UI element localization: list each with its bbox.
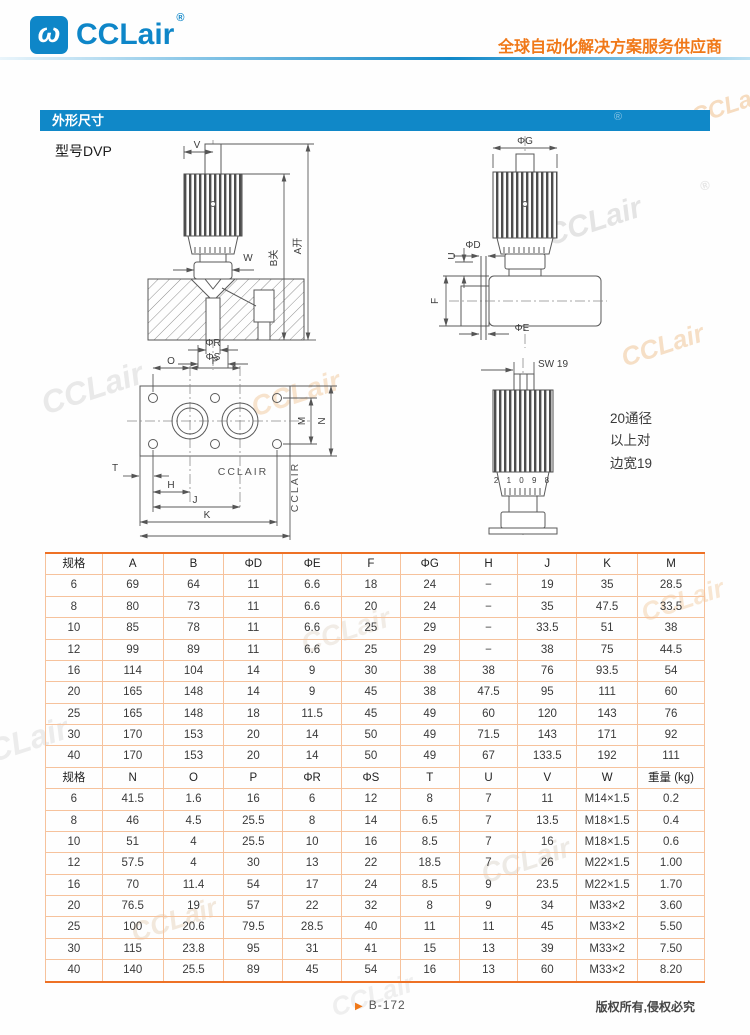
spec-cell: 25 xyxy=(46,917,103,938)
value-cell: 34 xyxy=(518,896,577,917)
value-cell: 70 xyxy=(102,874,163,895)
dim-label-phi-d: ΦD xyxy=(465,240,480,251)
value-cell: 11 xyxy=(518,789,577,810)
value-cell: 13.5 xyxy=(518,810,577,831)
knob-scale-digits: 2 1 0 9 8 xyxy=(494,476,552,485)
table-row: 88073116.62024−3547.533.5 xyxy=(46,596,705,617)
value-cell: 51 xyxy=(577,618,638,639)
value-cell: 148 xyxy=(163,703,224,724)
value-cell: 20 xyxy=(224,725,283,746)
value-cell: 45 xyxy=(518,917,577,938)
value-cell: M22×1.5 xyxy=(577,853,638,874)
value-cell: 13 xyxy=(283,853,342,874)
value-cell: 18 xyxy=(224,703,283,724)
value-cell: 9 xyxy=(459,896,518,917)
value-cell: 17 xyxy=(283,874,342,895)
value-cell: 171 xyxy=(577,725,638,746)
dimension-table: 规格ABΦDΦEFΦGHJKM66964116.61824−193528.588… xyxy=(45,552,705,983)
value-cell: 6.6 xyxy=(283,618,342,639)
column-header: J xyxy=(518,553,577,575)
column-header: F xyxy=(342,553,401,575)
table-row: 2076.5195722328934M33×23.60 xyxy=(46,896,705,917)
value-cell: 11 xyxy=(224,618,283,639)
value-cell: 45 xyxy=(342,703,401,724)
column-header: ΦE xyxy=(283,553,342,575)
value-cell: M18×1.5 xyxy=(577,831,638,852)
value-cell: 6.5 xyxy=(400,810,459,831)
value-cell: 165 xyxy=(102,703,163,724)
value-cell: 16 xyxy=(400,960,459,982)
value-cell: 6.6 xyxy=(283,596,342,617)
value-cell: 76 xyxy=(518,660,577,681)
value-cell: 49 xyxy=(400,725,459,746)
value-cell: 14 xyxy=(342,810,401,831)
section-banner: 外形尺寸 ® xyxy=(40,110,710,131)
value-cell: 23.5 xyxy=(518,874,577,895)
spec-cell: 16 xyxy=(46,874,103,895)
value-cell: 60 xyxy=(518,960,577,982)
column-header: ΦD xyxy=(224,553,283,575)
value-cell: 114 xyxy=(102,660,163,681)
value-cell: 49 xyxy=(400,746,459,767)
value-cell: 35 xyxy=(518,596,577,617)
dim-label-sw: SW 19 xyxy=(538,359,568,370)
table-row: 3011523.8953141151339M33×27.50 xyxy=(46,938,705,959)
table-row: 108578116.62529−33.55138 xyxy=(46,618,705,639)
plate-dimensions: O P M N T H J K CCLAIR CCLA xyxy=(112,356,337,540)
table-row: 4014025.5894554161360M33×28.20 xyxy=(46,960,705,982)
value-cell: 95 xyxy=(224,938,283,959)
page-number-text: B-172 xyxy=(369,998,406,1012)
value-cell: 64 xyxy=(163,575,224,596)
value-cell: 4 xyxy=(163,831,224,852)
value-cell: 3.60 xyxy=(638,896,705,917)
value-cell: 20 xyxy=(342,596,401,617)
value-cell: 30 xyxy=(342,660,401,681)
page-number: ▶B-172 xyxy=(355,998,406,1012)
dim-label-j: J xyxy=(193,495,198,506)
dimension-table-wrap: 规格ABΦDΦEFΦGHJKM66964116.61824−193528.588… xyxy=(45,552,705,983)
value-cell: 6.6 xyxy=(283,639,342,660)
spec-cell: 20 xyxy=(46,682,103,703)
value-cell: − xyxy=(459,575,518,596)
value-cell: 111 xyxy=(577,682,638,703)
table-row: 2510020.679.528.540111145M33×25.50 xyxy=(46,917,705,938)
value-cell: 115 xyxy=(102,938,163,959)
value-cell: 4 xyxy=(163,853,224,874)
value-cell: 143 xyxy=(577,703,638,724)
value-cell: 29 xyxy=(400,618,459,639)
model-label: 型号DVP xyxy=(55,141,112,161)
value-cell: 60 xyxy=(638,682,705,703)
company-tagline: 全球自动化解决方案服务供应商 xyxy=(498,33,722,57)
value-cell: 165 xyxy=(102,682,163,703)
column-header: O xyxy=(163,767,224,788)
value-cell: 24 xyxy=(400,575,459,596)
value-cell: 46 xyxy=(102,810,163,831)
table-row: 1257.5430132218.5726M22×1.51.00 xyxy=(46,853,705,874)
dim-label-t: T xyxy=(112,463,118,474)
dim-label-b-closed: B关 xyxy=(267,250,280,267)
value-cell: 4.5 xyxy=(163,810,224,831)
section-title: 外形尺寸 xyxy=(40,110,710,131)
column-header: A xyxy=(102,553,163,575)
column-header: N xyxy=(102,767,163,788)
knob-note-line: 以上对 xyxy=(610,430,700,452)
column-header: W xyxy=(577,767,638,788)
value-cell: 54 xyxy=(638,660,705,681)
value-cell: 14 xyxy=(283,746,342,767)
value-cell: 89 xyxy=(163,639,224,660)
dim-label-v: V xyxy=(194,140,201,151)
value-cell: 20.6 xyxy=(163,917,224,938)
table-row: 401701532014504967133.5192111 xyxy=(46,746,705,767)
column-header: 重量 (kg) xyxy=(638,767,705,788)
value-cell: 9 xyxy=(283,660,342,681)
value-cell: 11 xyxy=(224,639,283,660)
value-cell: 23.8 xyxy=(163,938,224,959)
value-cell: 38 xyxy=(518,639,577,660)
spec-cell: 8 xyxy=(46,596,103,617)
value-cell: 25.5 xyxy=(163,960,224,982)
brand-logo-icon: ω xyxy=(30,16,68,54)
value-cell: 69 xyxy=(102,575,163,596)
dim-label-f: F xyxy=(430,298,441,304)
value-cell: 38 xyxy=(638,618,705,639)
value-cell: 39 xyxy=(518,938,577,959)
value-cell: 148 xyxy=(163,682,224,703)
value-cell: 18 xyxy=(342,575,401,596)
spec-cell: 20 xyxy=(46,896,103,917)
value-cell: 40 xyxy=(342,917,401,938)
value-cell: 1.6 xyxy=(163,789,224,810)
value-cell: 22 xyxy=(283,896,342,917)
dim-label-o: O xyxy=(167,356,175,367)
value-cell: M33×2 xyxy=(577,938,638,959)
dim-label-n: N xyxy=(317,417,328,424)
table-row: 66964116.61824−193528.5 xyxy=(46,575,705,596)
value-cell: 47.5 xyxy=(577,596,638,617)
value-cell: 57.5 xyxy=(102,853,163,874)
column-header: T xyxy=(400,767,459,788)
value-cell: M33×2 xyxy=(577,960,638,982)
value-cell: 14 xyxy=(224,660,283,681)
value-cell: 170 xyxy=(102,725,163,746)
value-cell: 100 xyxy=(102,917,163,938)
value-cell: M22×1.5 xyxy=(577,874,638,895)
drawing-side-view: ΦG ΦD U F ΦE xyxy=(425,134,640,354)
brand-name: CCLair® xyxy=(76,18,182,52)
spec-cell: 10 xyxy=(46,618,103,639)
value-cell: − xyxy=(459,596,518,617)
value-cell: 54 xyxy=(224,874,283,895)
value-cell: 0.2 xyxy=(638,789,705,810)
table-row: 161141041493038387693.554 xyxy=(46,660,705,681)
value-cell: 33.5 xyxy=(638,596,705,617)
value-cell: 1.00 xyxy=(638,853,705,874)
value-cell: 33.5 xyxy=(518,618,577,639)
knob-note-line: 20通径 xyxy=(610,408,700,430)
value-cell: 9 xyxy=(283,682,342,703)
value-cell: 7 xyxy=(459,831,518,852)
value-cell: 11.5 xyxy=(283,703,342,724)
value-cell: 20 xyxy=(224,746,283,767)
value-cell: 120 xyxy=(518,703,577,724)
value-cell: 143 xyxy=(518,725,577,746)
value-cell: 140 xyxy=(102,960,163,982)
value-cell: 31 xyxy=(283,938,342,959)
value-cell: 85 xyxy=(102,618,163,639)
value-cell: 11 xyxy=(224,596,283,617)
value-cell: 78 xyxy=(163,618,224,639)
value-cell: 22 xyxy=(342,853,401,874)
dim-label-phi-e: ΦE xyxy=(515,323,530,334)
value-cell: 16 xyxy=(518,831,577,852)
value-cell: 18.5 xyxy=(400,853,459,874)
column-header: P xyxy=(224,767,283,788)
value-cell: 6.6 xyxy=(283,575,342,596)
column-header: 规格 xyxy=(46,553,103,575)
value-cell: 45 xyxy=(342,682,401,703)
value-cell: 38 xyxy=(400,682,459,703)
value-cell: 19 xyxy=(518,575,577,596)
value-cell: 192 xyxy=(577,746,638,767)
value-cell: M33×2 xyxy=(577,917,638,938)
value-cell: 10 xyxy=(283,831,342,852)
value-cell: 16 xyxy=(342,831,401,852)
brand-text: CCLair xyxy=(76,18,174,51)
drawing-plate-view: O P M N T H J K CCLAIR CCLA xyxy=(95,352,375,552)
spec-cell: 6 xyxy=(46,575,103,596)
value-cell: M18×1.5 xyxy=(577,810,638,831)
spec-cell: 40 xyxy=(46,960,103,982)
value-cell: M14×1.5 xyxy=(577,789,638,810)
value-cell: 49 xyxy=(400,703,459,724)
value-cell: 51 xyxy=(102,831,163,852)
value-cell: 16 xyxy=(224,789,283,810)
value-cell: 71.5 xyxy=(459,725,518,746)
value-cell: 8 xyxy=(283,810,342,831)
value-cell: 32 xyxy=(342,896,401,917)
value-cell: − xyxy=(459,618,518,639)
spec-cell: 12 xyxy=(46,639,103,660)
value-cell: 111 xyxy=(638,746,705,767)
value-cell: 13 xyxy=(459,938,518,959)
value-cell: 38 xyxy=(459,660,518,681)
table-row: 251651481811.545496012014376 xyxy=(46,703,705,724)
table-row: 8464.525.58146.5713.5M18×1.50.4 xyxy=(46,810,705,831)
value-cell: 8 xyxy=(400,896,459,917)
value-cell: 45 xyxy=(283,960,342,982)
spec-cell: 8 xyxy=(46,810,103,831)
drawing-front-view: V W B关 A开 ΦR ΦS xyxy=(118,138,358,373)
value-cell: 50 xyxy=(342,725,401,746)
header-divider xyxy=(0,57,750,60)
value-cell: 153 xyxy=(163,725,224,746)
value-cell: 50 xyxy=(342,746,401,767)
value-cell: 8 xyxy=(400,789,459,810)
plate-geometry xyxy=(127,366,310,510)
value-cell: 19 xyxy=(163,896,224,917)
value-cell: 57 xyxy=(224,896,283,917)
column-header: ΦS xyxy=(342,767,401,788)
column-header: V xyxy=(518,767,577,788)
spec-cell: 30 xyxy=(46,725,103,746)
value-cell: 7.50 xyxy=(638,938,705,959)
value-cell: 25 xyxy=(342,639,401,660)
value-cell: − xyxy=(459,639,518,660)
value-cell: 92 xyxy=(638,725,705,746)
value-cell: 24 xyxy=(342,874,401,895)
value-cell: 25.5 xyxy=(224,831,283,852)
value-cell: 13 xyxy=(459,960,518,982)
value-cell: 47.5 xyxy=(459,682,518,703)
table-row: 641.51.6166128711M14×1.50.2 xyxy=(46,789,705,810)
value-cell: 35 xyxy=(577,575,638,596)
column-header: K xyxy=(577,553,638,575)
value-cell: 44.5 xyxy=(638,639,705,660)
plate-brand-text-vertical: CCLAIR xyxy=(289,462,301,513)
knob-note-line: 边宽19 xyxy=(610,453,700,475)
copyright-notice: 版权所有,侵权必究 xyxy=(596,998,695,1015)
value-cell: 28.5 xyxy=(638,575,705,596)
page-marker-icon: ▶ xyxy=(355,1001,363,1012)
table-row: 167011.45417248.5923.5M22×1.51.70 xyxy=(46,874,705,895)
value-cell: 8.20 xyxy=(638,960,705,982)
value-cell: 73 xyxy=(163,596,224,617)
spec-cell: 40 xyxy=(46,746,103,767)
value-cell: 11 xyxy=(224,575,283,596)
value-cell: 25.5 xyxy=(224,810,283,831)
dim-label-phi-g: ΦG xyxy=(517,136,533,147)
value-cell: 0.4 xyxy=(638,810,705,831)
value-cell: 26 xyxy=(518,853,577,874)
value-cell: 79.5 xyxy=(224,917,283,938)
table-row: 20165148149453847.59511160 xyxy=(46,682,705,703)
value-cell: 7 xyxy=(459,810,518,831)
spec-cell: 30 xyxy=(46,938,103,959)
value-cell: 93.5 xyxy=(577,660,638,681)
column-header: B xyxy=(163,553,224,575)
value-cell: 14 xyxy=(283,725,342,746)
value-cell: 5.50 xyxy=(638,917,705,938)
spec-cell: 25 xyxy=(46,703,103,724)
dim-label-a-open: A开 xyxy=(293,238,304,255)
value-cell: 8.5 xyxy=(400,831,459,852)
value-cell: M33×2 xyxy=(577,896,638,917)
table-row: 301701532014504971.514317192 xyxy=(46,725,705,746)
value-cell: 104 xyxy=(163,660,224,681)
value-cell: 11.4 xyxy=(163,874,224,895)
value-cell: 0.6 xyxy=(638,831,705,852)
value-cell: 29 xyxy=(400,639,459,660)
value-cell: 7 xyxy=(459,789,518,810)
value-cell: 76 xyxy=(638,703,705,724)
column-header: H xyxy=(459,553,518,575)
dim-label-m: M xyxy=(297,417,308,425)
value-cell: 11 xyxy=(400,917,459,938)
value-cell: 133.5 xyxy=(518,746,577,767)
value-cell: 14 xyxy=(224,682,283,703)
column-header: ΦR xyxy=(283,767,342,788)
knob-geometry: 2 1 0 9 8 xyxy=(489,358,557,536)
spec-cell: 10 xyxy=(46,831,103,852)
value-cell: 170 xyxy=(102,746,163,767)
value-cell: 15 xyxy=(400,938,459,959)
spec-cell: 16 xyxy=(46,660,103,681)
banner-registered-mark: ® xyxy=(614,111,622,123)
value-cell: 60 xyxy=(459,703,518,724)
drawing-knob-detail: 2 1 0 9 8 SW 19 xyxy=(453,356,613,538)
table-row: 1051425.510168.5716M18×1.50.6 xyxy=(46,831,705,852)
value-cell: 38 xyxy=(400,660,459,681)
value-cell: 7 xyxy=(459,853,518,874)
table-header-row: 规格NOPΦRΦSTUVW重量 (kg) xyxy=(46,767,705,788)
spec-cell: 12 xyxy=(46,853,103,874)
front-view-geometry xyxy=(148,140,304,370)
value-cell: 9 xyxy=(459,874,518,895)
column-header: M xyxy=(638,553,705,575)
value-cell: 25 xyxy=(342,618,401,639)
value-cell: 67 xyxy=(459,746,518,767)
value-cell: 54 xyxy=(342,960,401,982)
watermark-registered: ® xyxy=(698,177,712,194)
value-cell: 153 xyxy=(163,746,224,767)
column-header: 规格 xyxy=(46,767,103,788)
value-cell: 75 xyxy=(577,639,638,660)
value-cell: 89 xyxy=(224,960,283,982)
dim-label-k: K xyxy=(204,510,211,521)
logo-swoosh-glyph: ω xyxy=(38,20,61,47)
value-cell: 99 xyxy=(102,639,163,660)
value-cell: 41 xyxy=(342,938,401,959)
value-cell: 24 xyxy=(400,596,459,617)
dimension-table-body: 规格ABΦDΦEFΦGHJKM66964116.61824−193528.588… xyxy=(46,553,705,982)
dim-label-h: H xyxy=(167,480,174,491)
dim-label-p: P xyxy=(212,356,219,367)
value-cell: 12 xyxy=(342,789,401,810)
value-cell: 30 xyxy=(224,853,283,874)
value-cell: 41.5 xyxy=(102,789,163,810)
registered-mark: ® xyxy=(176,12,184,24)
plate-brand-text: CCLAIR xyxy=(218,466,269,478)
column-header: ΦG xyxy=(400,553,459,575)
column-header: U xyxy=(459,767,518,788)
value-cell: 11 xyxy=(459,917,518,938)
value-cell: 6 xyxy=(283,789,342,810)
value-cell: 76.5 xyxy=(102,896,163,917)
table-header-row: 规格ABΦDΦEFΦGHJKM xyxy=(46,553,705,575)
value-cell: 8.5 xyxy=(400,874,459,895)
spec-cell: 6 xyxy=(46,789,103,810)
table-row: 129989116.62529−387544.5 xyxy=(46,639,705,660)
dim-label-w: W xyxy=(243,253,253,264)
value-cell: 95 xyxy=(518,682,577,703)
knob-note: 20通径 以上对 边宽19 xyxy=(610,408,700,475)
dim-label-u: U xyxy=(447,252,458,259)
value-cell: 28.5 xyxy=(283,917,342,938)
value-cell: 80 xyxy=(102,596,163,617)
dim-label-phi-r: ΦR xyxy=(205,338,220,349)
catalog-page: CCLair ® CCLair CCLair CCLair CCLair CCL… xyxy=(0,0,750,1035)
value-cell: 1.70 xyxy=(638,874,705,895)
